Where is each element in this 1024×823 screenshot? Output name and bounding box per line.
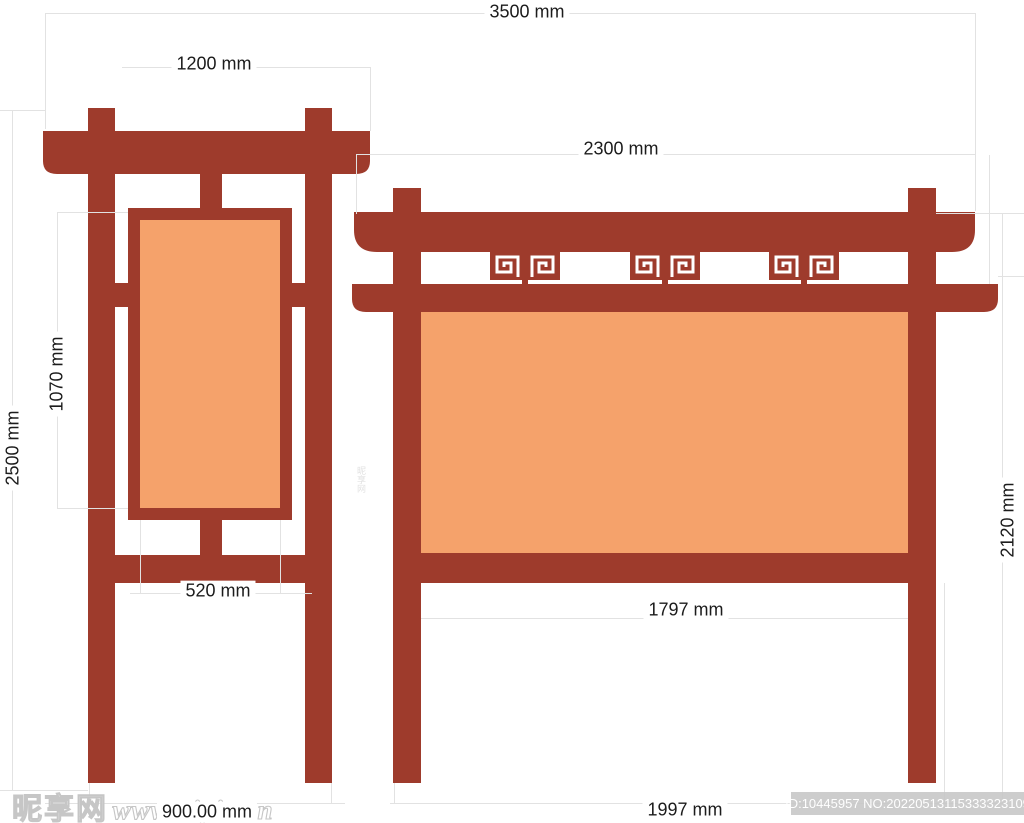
dim-right-roof-width-line: [356, 154, 975, 155]
left-sign-post-right: [305, 108, 332, 783]
center-watermark: 昵享网: [355, 466, 368, 493]
left-sign-connector-left: [112, 283, 132, 307]
extension-line: [0, 110, 45, 111]
extension-line: [356, 154, 357, 214]
right-board-post-right: [908, 188, 936, 783]
right-board-beam: [352, 284, 998, 312]
dim-left-roof-width-label: 1200 mm: [171, 54, 256, 75]
dim-left-panel-height-label: 1070 mm: [47, 331, 68, 416]
site-watermark-name: 昵享网: [12, 793, 108, 823]
dim-left-base-width-label: 900.00 mm: [157, 802, 257, 823]
extension-line: [57, 508, 128, 509]
extension-line: [394, 783, 395, 803]
left-sign-top-stub: [200, 174, 222, 210]
image-id-text: ID:10445957 NO:20220513115333323109: [785, 796, 1024, 811]
extension-line: [370, 67, 371, 131]
extension-line: [140, 520, 141, 593]
left-sign-bottom-stub: [200, 518, 222, 558]
extension-line: [331, 783, 332, 803]
scroll-ornament-1: [490, 252, 560, 286]
drawing-canvas: 3500 mm 1200 mm 2300 mm 2500 mm 1070 mm …: [0, 0, 1024, 823]
extension-line: [998, 276, 1024, 277]
extension-line: [936, 213, 1024, 214]
dim-left-panel-width-label: 520 mm: [180, 581, 255, 602]
extension-line: [975, 13, 976, 211]
left-sign-connector-right: [288, 283, 308, 307]
dim-overall-height-label: 2500 mm: [3, 405, 24, 490]
scroll-ornament-2: [630, 252, 700, 286]
left-sign-panel: [140, 220, 280, 508]
right-board-roof: [354, 212, 975, 252]
extension-line: [989, 155, 990, 284]
extension-line: [57, 212, 128, 213]
left-sign-post-left: [88, 108, 115, 783]
left-sign-bottom-rail: [88, 555, 332, 583]
signboard-drawing: [0, 0, 1024, 823]
right-board-post-left: [393, 188, 421, 783]
dim-right-base-width-label: 1997 mm: [642, 800, 727, 821]
left-sign-roof: [43, 131, 370, 174]
right-board-panel: [421, 312, 908, 553]
dim-right-roof-width-label: 2300 mm: [578, 139, 663, 160]
image-id-badge: ID:10445957 NO:20220513115333323109: [791, 792, 1024, 815]
right-board-bottom-rail: [393, 553, 936, 583]
dim-right-height-label: 2120 mm: [998, 477, 1019, 562]
dim-total-width-label: 3500 mm: [484, 2, 569, 23]
extension-line: [45, 13, 46, 129]
extension-line: [280, 520, 281, 593]
scroll-ornament-3: [769, 252, 839, 286]
dim-right-panel-width-label: 1797 mm: [643, 600, 728, 621]
extension-line: [944, 583, 945, 803]
